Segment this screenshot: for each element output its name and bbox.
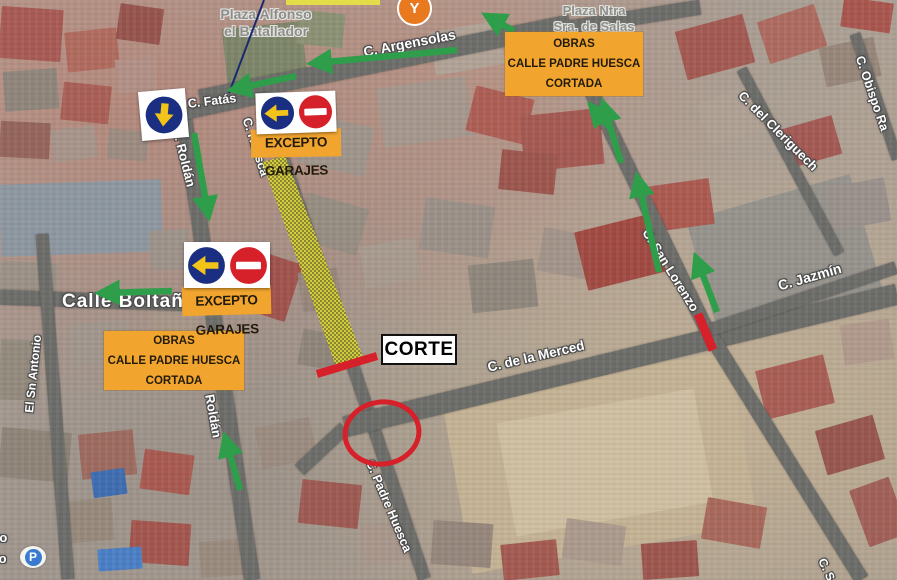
obras-notice-right: OBRAS CALLE PADRE HUESCA CORTADA <box>505 32 643 96</box>
cropped-yellow-box-top-edge <box>286 0 380 5</box>
place-label-plaza-alfonso: Plaza Alfonso el Batallador <box>196 6 336 40</box>
parking-icon: P <box>20 546 46 568</box>
blue-down-arrow-sign <box>138 88 189 141</box>
street-label-fragment-to: to <box>0 530 7 545</box>
parking-letter: P <box>25 549 42 566</box>
street-label-boltana: Calle Boltaña <box>62 291 195 313</box>
pin-glyph: Y <box>409 0 419 17</box>
no-entry-icon <box>297 94 333 130</box>
place-label-plaza-salas: Plaza Ntra Sra. de Salas <box>534 3 654 34</box>
left-arrow-no-entry-sign-left <box>184 242 270 288</box>
corte-callout: CORTE <box>381 334 457 365</box>
excepto-garajes-left: EXCEPTO GARAJES <box>182 285 272 316</box>
left-arrow-no-entry-sign-top <box>255 91 336 135</box>
map-canvas: Plaza Alfonso el Batallador Plaza Ntra S… <box>0 0 897 580</box>
blue-left-arrow-icon <box>187 246 226 285</box>
street-label-fragment-io: io <box>0 551 7 566</box>
photo-grain <box>0 0 897 580</box>
no-entry-icon <box>229 246 268 285</box>
down-arrow-icon <box>141 92 187 138</box>
blue-left-arrow-icon <box>259 95 295 131</box>
